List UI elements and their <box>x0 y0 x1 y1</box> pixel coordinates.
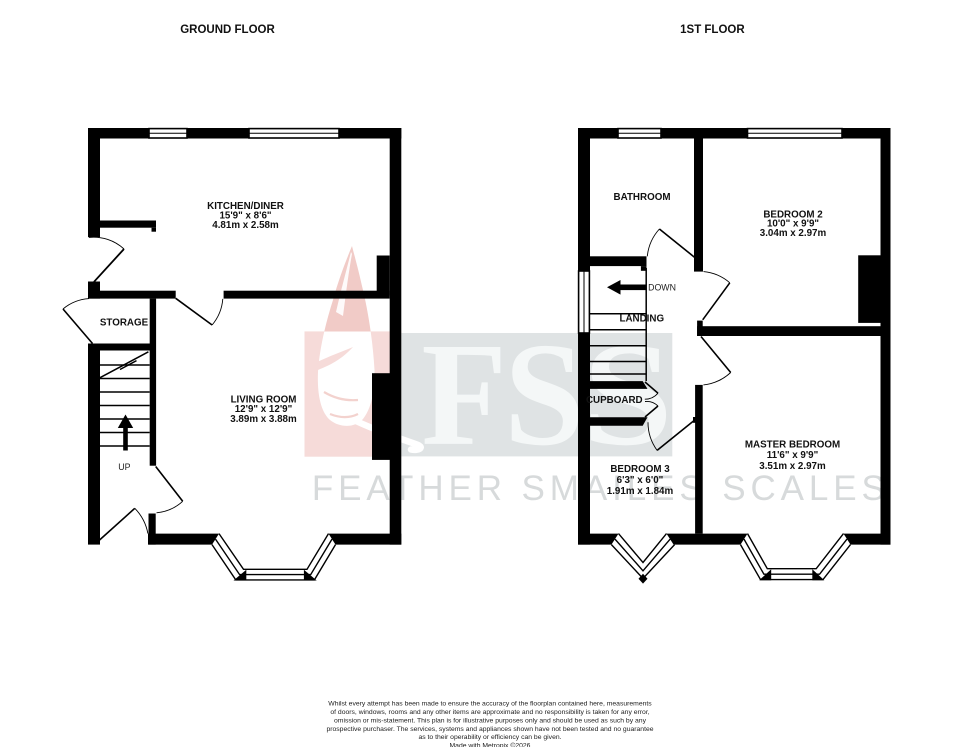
svg-text:S: S <box>504 313 585 477</box>
svg-text:1.91m x 1.84m: 1.91m x 1.84m <box>607 486 674 497</box>
svg-text:CUPBOARD: CUPBOARD <box>586 395 643 406</box>
svg-text:of doors, windows, rooms and a: of doors, windows, rooms and any other i… <box>330 709 649 716</box>
svg-text:STORAGE: STORAGE <box>100 317 149 328</box>
svg-text:prospective purchaser. The ser: prospective purchaser. The services, sys… <box>326 726 653 733</box>
svg-text:Whilst every attempt has been: Whilst every attempt has been made to en… <box>328 700 652 707</box>
svg-text:DOWN: DOWN <box>648 283 676 293</box>
svg-text:LANDING: LANDING <box>619 313 664 324</box>
svg-text:6'3" x 6'0": 6'3" x 6'0" <box>617 475 664 486</box>
svg-text:BATHROOM: BATHROOM <box>614 192 671 203</box>
svg-text:omission or mis-statement. Thi: omission or mis-statement. This plan is … <box>334 718 647 725</box>
svg-text:GROUND FLOOR: GROUND FLOOR <box>180 24 275 36</box>
svg-text:3.89m x 3.88m: 3.89m x 3.88m <box>230 414 297 425</box>
svg-text:3.51m x 2.97m: 3.51m x 2.97m <box>759 461 826 472</box>
svg-text:F: F <box>421 313 507 477</box>
svg-text:3.04m x 2.97m: 3.04m x 2.97m <box>760 228 827 239</box>
svg-text:Made with Metropix ©2026: Made with Metropix ©2026 <box>450 741 531 747</box>
svg-text:1ST FLOOR: 1ST FLOOR <box>680 24 745 36</box>
svg-text:11'6" x 9'9": 11'6" x 9'9" <box>767 450 819 461</box>
svg-text:4.81m x 2.58m: 4.81m x 2.58m <box>212 220 279 231</box>
svg-text:UP: UP <box>118 462 130 472</box>
svg-text:as to their operability or eff: as to their operability or efficiency ca… <box>418 734 561 741</box>
svg-text:BEDROOM 3: BEDROOM 3 <box>610 464 670 475</box>
svg-text:MASTER BEDROOM: MASTER BEDROOM <box>745 439 840 450</box>
